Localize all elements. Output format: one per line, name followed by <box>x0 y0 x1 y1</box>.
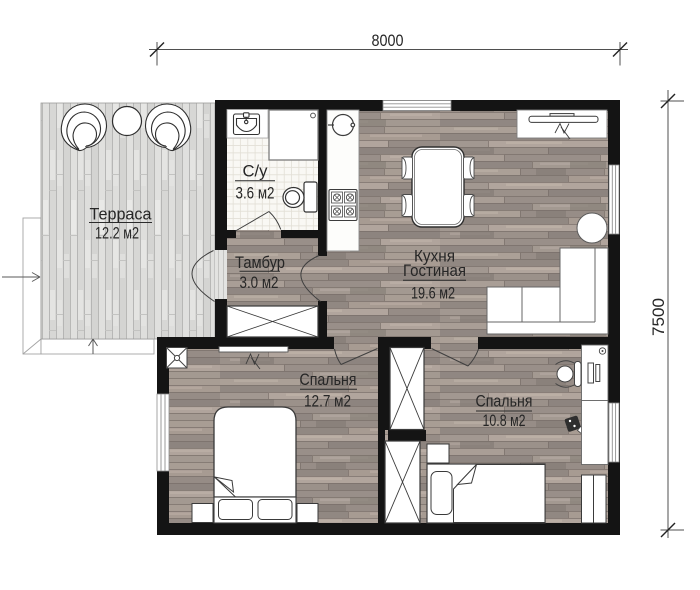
svg-text:12.7 м2: 12.7 м2 <box>304 393 351 411</box>
svg-text:Спальня: Спальня <box>476 393 533 411</box>
svg-text:Гостиная: Гостиная <box>403 262 466 280</box>
svg-text:10.8 м2: 10.8 м2 <box>483 412 526 430</box>
svg-text:8000: 8000 <box>372 32 404 50</box>
svg-text:7500: 7500 <box>650 298 668 336</box>
svg-text:Терраса: Терраса <box>90 206 153 224</box>
svg-text:3.0 м2: 3.0 м2 <box>240 274 279 292</box>
svg-text:12.2 м2: 12.2 м2 <box>95 225 139 243</box>
svg-text:С/у: С/у <box>243 163 269 181</box>
svg-text:3.6 м2: 3.6 м2 <box>236 184 275 202</box>
svg-text:19.6 м2: 19.6 м2 <box>411 285 455 303</box>
svg-text:Спальня: Спальня <box>300 371 357 389</box>
svg-text:Тамбур: Тамбур <box>235 254 285 272</box>
